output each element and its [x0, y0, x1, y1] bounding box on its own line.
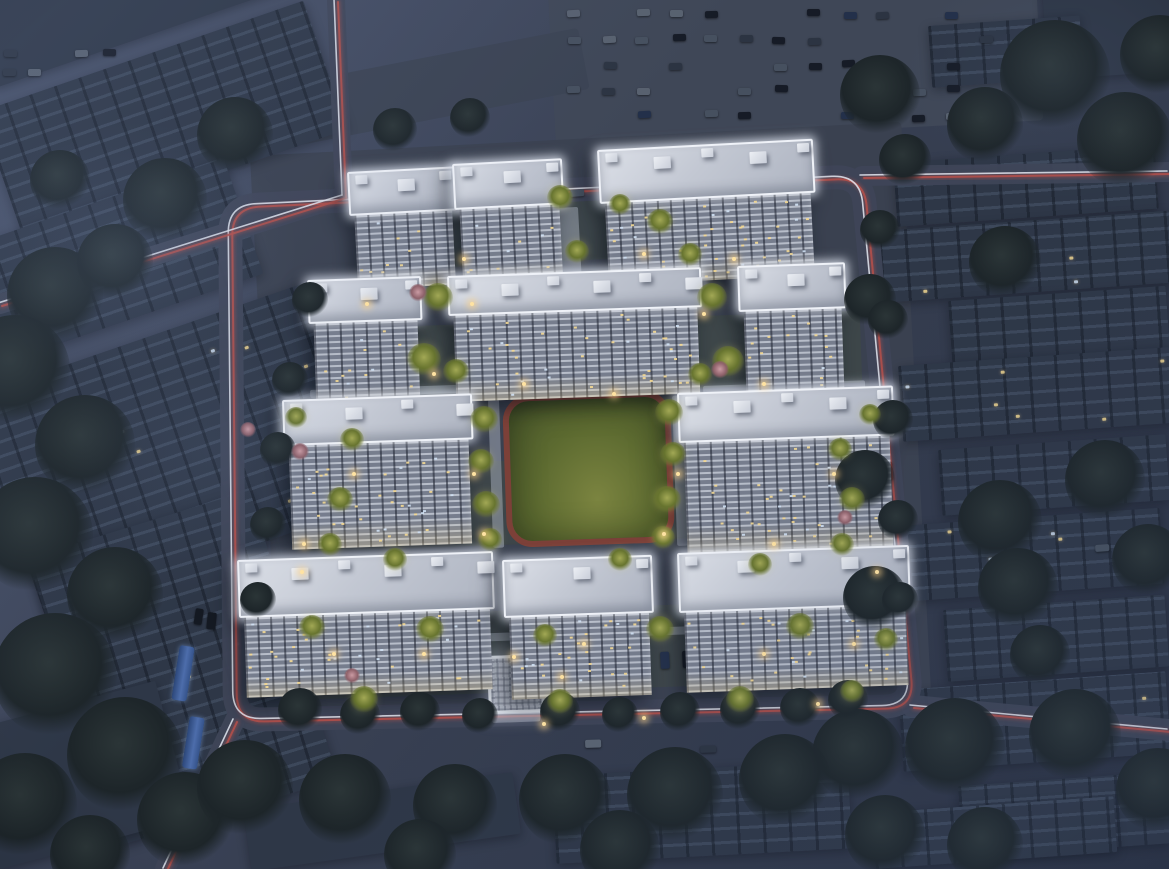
rooftop-unit: [546, 162, 558, 172]
lit-apartment-window: [297, 682, 300, 684]
lit-apartment-window: [736, 538, 739, 540]
lit-apartment-window: [525, 658, 528, 660]
lit-apartment-window: [649, 380, 652, 382]
lit-apartment-window: [574, 327, 577, 329]
dark-tree-canopy: [905, 698, 1005, 798]
lit-apartment-window: [679, 382, 682, 384]
rooftop-unit: [789, 553, 801, 562]
lit-tree: [299, 615, 325, 641]
lit-apartment-window: [689, 355, 692, 357]
lit-apartment-window: [521, 667, 524, 669]
lit-apartment-window: [438, 615, 441, 617]
lit-apartment-window: [702, 667, 705, 669]
lit-apartment-window: [766, 498, 769, 500]
lit-apartment-window: [620, 227, 623, 229]
dark-tree-canopy: [1065, 440, 1145, 520]
lit-apartment-window: [770, 496, 773, 498]
garden-lamp: [662, 532, 666, 536]
lit-tree: [468, 449, 494, 475]
lit-apartment-window: [741, 226, 744, 228]
lit-apartment-window: [391, 501, 394, 503]
lit-tree: [608, 548, 632, 572]
rooftop-unit: [829, 266, 841, 275]
lit-apartment-window: [680, 343, 683, 345]
lit-apartment-window: [792, 661, 795, 663]
lit-apartment-window: [730, 675, 733, 677]
lit-apartment-window: [406, 462, 409, 464]
rooftop-unit: [787, 274, 804, 287]
lit-apartment-window: [361, 339, 364, 341]
lit-apartment-window: [400, 264, 403, 266]
lit-apartment-window: [647, 370, 650, 372]
lit-apartment-window: [515, 373, 518, 375]
lit-apartment-window: [542, 674, 545, 676]
lit-apartment-window: [750, 680, 753, 682]
lit-apartment-window: [869, 535, 872, 537]
dark-tree-canopy: [1010, 625, 1070, 685]
lit-tree: [828, 438, 852, 462]
lit-apartment-window: [825, 346, 828, 348]
lit-apartment-window: [631, 224, 634, 226]
lit-apartment-window: [358, 655, 361, 657]
flowering-tree: [711, 361, 729, 379]
lit-apartment-window: [664, 376, 667, 378]
dark-tree-canopy: [660, 692, 700, 732]
residential-building-top-left-west: [347, 166, 461, 289]
garden-lamp: [512, 655, 516, 659]
lit-apartment-window: [776, 226, 779, 228]
rooftop-unit: [605, 153, 617, 163]
lit-apartment-window: [767, 530, 770, 532]
lit-apartment-window: [741, 245, 744, 247]
lit-apartment-window: [642, 374, 645, 376]
lit-apartment-window: [401, 505, 404, 507]
lit-apartment-window: [829, 355, 832, 357]
lit-apartment-window: [547, 266, 550, 268]
lit-apartment-window: [429, 491, 432, 493]
garden-lamp: [642, 716, 646, 720]
lit-apartment-window: [292, 646, 295, 648]
lit-tree: [726, 686, 754, 714]
lit-apartment-window: [643, 377, 646, 379]
garden-lamp: [612, 392, 616, 396]
rooftop-unit: [636, 559, 648, 568]
lit-apartment-window: [633, 623, 636, 625]
lit-apartment-window: [807, 654, 810, 656]
lit-apartment-window: [798, 236, 801, 238]
lit-apartment-window: [820, 525, 823, 527]
lit-apartment-window: [610, 648, 613, 650]
garden-lamp: [432, 372, 436, 376]
lit-apartment-window: [817, 525, 820, 527]
lit-apartment-window: [398, 344, 401, 346]
dark-tree-canopy: [882, 582, 918, 618]
lit-apartment-window: [377, 530, 380, 532]
walkway-path: [492, 712, 540, 723]
lit-tree: [678, 243, 702, 267]
lit-apartment-window: [742, 534, 745, 536]
lit-apartment-window: [730, 221, 733, 223]
garden-lamp: [676, 472, 680, 476]
lit-apartment-window: [874, 517, 877, 519]
lit-apartment-window: [856, 629, 859, 631]
lit-apartment-window: [511, 394, 514, 396]
lit-apartment-window: [402, 623, 405, 625]
lit-apartment-window: [421, 512, 424, 514]
lit-apartment-window: [759, 617, 762, 619]
dark-tree-canopy: [969, 226, 1041, 298]
lit-tree: [688, 363, 712, 387]
lit-apartment-window: [500, 342, 503, 344]
dark-tree-canopy: [292, 282, 328, 318]
lit-tree: [874, 628, 898, 652]
lit-apartment-window: [489, 347, 492, 349]
lit-apartment-window: [791, 521, 794, 523]
rooftop-unit: [781, 393, 793, 402]
dark-tree-canopy: [860, 210, 900, 250]
rooftop-unit: [685, 396, 697, 405]
lit-apartment-window: [806, 529, 809, 531]
lit-apartment-window: [869, 444, 872, 446]
lit-apartment-window: [545, 369, 548, 371]
lit-apartment-window: [711, 214, 714, 216]
rooftop-unit: [401, 399, 413, 408]
lit-apartment-window: [744, 239, 747, 241]
garden-lamp: [702, 312, 706, 316]
dark-tree-canopy: [373, 108, 417, 152]
garden-lamp: [816, 702, 820, 706]
lit-apartment-window: [884, 677, 887, 679]
lit-apartment-window: [547, 376, 550, 378]
lit-apartment-window: [264, 683, 267, 685]
lit-apartment-window: [828, 466, 831, 468]
lit-apartment-window: [434, 457, 437, 459]
dark-tree-canopy: [739, 734, 831, 826]
lit-apartment-window: [621, 314, 624, 316]
garden-lamp: [472, 472, 476, 476]
lit-tree: [472, 491, 500, 519]
lit-apartment-window: [369, 270, 372, 272]
lit-apartment-window: [613, 240, 616, 242]
lit-apartment-window: [754, 327, 757, 329]
lit-tree: [655, 399, 683, 427]
lit-apartment-window: [270, 651, 273, 653]
lit-apartment-window: [577, 642, 580, 644]
lit-apartment-window: [774, 672, 777, 674]
lit-apartment-window: [418, 230, 421, 232]
lit-apartment-window: [885, 654, 888, 656]
residential-building-mid-center: [447, 267, 705, 402]
haze-patch: [60, 300, 360, 600]
lit-apartment-window: [793, 494, 796, 496]
lit-apartment-window: [456, 678, 459, 680]
lit-apartment-window: [393, 490, 396, 492]
garden-lamp: [642, 252, 646, 256]
lit-apartment-window: [634, 236, 637, 238]
scene: [0, 0, 1169, 869]
lit-tree: [547, 185, 573, 211]
rooftop-unit: [355, 175, 367, 185]
rooftop-unit: [503, 170, 521, 183]
dark-tree-canopy: [868, 300, 908, 340]
lit-apartment-window: [795, 219, 798, 221]
lit-apartment-window: [359, 519, 362, 521]
lit-apartment-window: [746, 512, 749, 514]
lit-apartment-window: [807, 323, 810, 325]
garden-lamp: [300, 570, 304, 574]
lit-apartment-window: [400, 467, 403, 469]
lit-tree: [565, 240, 589, 264]
lit-apartment-window: [885, 668, 888, 670]
building-facade: [509, 613, 652, 700]
lit-apartment-window: [624, 257, 627, 259]
lit-apartment-window: [899, 672, 902, 674]
lit-apartment-window: [364, 374, 367, 376]
rooftop-unit: [338, 560, 350, 569]
lit-apartment-window: [611, 341, 614, 343]
lit-apartment-window: [360, 270, 363, 272]
lit-apartment-window: [828, 485, 831, 487]
lit-apartment-window: [825, 335, 828, 337]
lit-apartment-window: [569, 636, 572, 638]
garden-lamp: [470, 302, 474, 306]
lit-apartment-window: [757, 484, 760, 486]
lit-apartment-window: [794, 517, 797, 519]
lit-apartment-window: [414, 513, 417, 515]
lit-apartment-window: [507, 250, 510, 252]
lit-apartment-window: [383, 474, 386, 476]
lit-apartment-window: [686, 382, 689, 384]
garden-lamp: [732, 257, 736, 261]
lit-apartment-window: [266, 678, 269, 680]
lit-apartment-window: [251, 624, 254, 626]
garden-lamp: [422, 652, 426, 656]
lit-apartment-window: [712, 492, 715, 494]
rooftop-unit: [460, 167, 472, 177]
lit-apartment-window: [578, 621, 581, 623]
lit-tree: [859, 404, 881, 426]
lit-apartment-window: [275, 656, 278, 658]
dark-tree-canopy: [602, 697, 638, 733]
lit-apartment-window: [371, 369, 374, 371]
lit-apartment-window: [408, 250, 411, 252]
lit-apartment-window: [367, 625, 370, 627]
dark-tree-canopy: [780, 688, 820, 728]
lit-apartment-window: [802, 250, 805, 252]
lit-apartment-window: [383, 528, 386, 530]
lit-apartment-window: [726, 649, 729, 651]
residential-building-bottom-center: [502, 555, 657, 700]
lit-apartment-window: [791, 657, 794, 659]
lit-apartment-window: [249, 653, 252, 655]
building-facade: [453, 307, 700, 401]
lit-apartment-window: [627, 319, 630, 321]
lit-apartment-window: [714, 270, 717, 272]
lit-apartment-window: [398, 625, 401, 627]
garden-lamp: [762, 652, 766, 656]
rooftop-unit: [431, 557, 443, 566]
dark-tree-canopy: [845, 795, 925, 869]
dark-tree-canopy: [197, 740, 293, 836]
lit-apartment-window: [525, 665, 528, 667]
dark-tree-canopy: [1029, 689, 1121, 781]
lit-apartment-window: [762, 256, 765, 258]
lit-apartment-window: [704, 245, 707, 247]
lit-tree: [651, 526, 675, 550]
lit-apartment-window: [540, 663, 543, 665]
garden-lamp: [772, 542, 776, 546]
lit-apartment-window: [518, 241, 521, 243]
lit-apartment-window: [637, 619, 640, 621]
lit-apartment-window: [470, 329, 473, 331]
lit-apartment-window: [778, 622, 781, 624]
rooftop-unit: [829, 397, 846, 410]
garden-lamp: [560, 675, 564, 679]
lit-apartment-window: [609, 621, 612, 623]
lit-tree: [646, 616, 674, 644]
garden-lamp: [852, 642, 856, 646]
lit-apartment-window: [506, 322, 509, 324]
rooftop-unit: [701, 148, 713, 158]
lit-apartment-window: [417, 531, 420, 533]
rooftop-unit: [510, 563, 522, 572]
lit-apartment-window: [723, 505, 726, 507]
lit-apartment-window: [676, 325, 679, 327]
lit-apartment-window: [477, 619, 480, 621]
rooftop-unit: [733, 400, 750, 413]
lit-apartment-window: [405, 534, 408, 536]
lit-tree: [350, 686, 378, 714]
lit-apartment-window: [662, 265, 665, 267]
car: [206, 612, 217, 630]
lit-apartment-window: [814, 334, 817, 336]
dark-tree-canopy: [978, 548, 1058, 628]
dark-tree-canopy: [278, 688, 322, 732]
lit-apartment-window: [627, 341, 630, 343]
lit-apartment-window: [568, 656, 571, 658]
lit-apartment-window: [590, 386, 593, 388]
lit-apartment-window: [541, 234, 544, 236]
lit-apartment-window: [805, 218, 808, 220]
lit-apartment-window: [386, 264, 389, 266]
lit-apartment-window: [715, 257, 718, 259]
lit-apartment-window: [803, 676, 806, 678]
garden-lamp: [365, 302, 369, 306]
rooftop-unit: [360, 288, 377, 301]
lit-tree: [533, 624, 557, 648]
lit-apartment-window: [704, 234, 707, 236]
lit-apartment-window: [348, 369, 351, 371]
lit-apartment-window: [381, 272, 384, 274]
lit-apartment-window: [760, 352, 763, 354]
lit-apartment-window: [793, 540, 796, 542]
rooftop-unit: [397, 178, 415, 191]
lit-apartment-window: [616, 623, 619, 625]
lit-apartment-window: [328, 659, 331, 661]
lit-apartment-window: [628, 647, 631, 649]
flowering-tree: [409, 284, 427, 302]
rooftop-unit: [547, 276, 559, 285]
lit-tree: [660, 442, 686, 468]
flowering-tree: [344, 668, 360, 684]
lit-apartment-window: [721, 523, 724, 525]
lit-apartment-window: [662, 261, 665, 263]
lit-apartment-window: [792, 315, 795, 317]
lit-apartment-window: [807, 447, 810, 449]
lit-apartment-window: [604, 624, 607, 626]
lit-tree: [416, 616, 444, 644]
lit-apartment-window: [579, 679, 582, 681]
lit-apartment-window: [301, 669, 304, 671]
dark-tree-canopy: [462, 698, 498, 734]
central-lawn-with-track: [502, 390, 675, 548]
lit-tree: [647, 209, 673, 235]
lit-tree: [423, 283, 453, 313]
lit-apartment-window: [515, 356, 518, 358]
lit-apartment-window: [410, 385, 413, 387]
lit-apartment-window: [726, 210, 729, 212]
lit-apartment-window: [454, 625, 457, 627]
building-facade: [244, 609, 493, 698]
lit-apartment-window: [541, 333, 544, 335]
lit-apartment-window: [870, 669, 873, 671]
lit-apartment-window: [751, 523, 754, 525]
lit-apartment-window: [751, 342, 754, 344]
lit-apartment-window: [388, 536, 391, 538]
lit-apartment-window: [249, 666, 252, 668]
lit-apartment-window: [588, 670, 591, 672]
lit-apartment-window: [778, 259, 781, 261]
lit-tree: [748, 553, 772, 577]
lit-apartment-window: [451, 494, 454, 496]
lit-apartment-window: [342, 375, 345, 377]
lit-apartment-window: [290, 660, 293, 662]
garden-lamp: [482, 532, 486, 536]
lit-apartment-window: [380, 649, 383, 651]
car: [585, 739, 601, 748]
garden-lamp: [762, 382, 766, 386]
lit-apartment-window: [475, 224, 478, 226]
garden-lamp: [832, 472, 836, 476]
lit-apartment-window: [865, 665, 868, 667]
lit-apartment-window: [669, 349, 672, 351]
lit-apartment-window: [813, 535, 816, 537]
lit-apartment-window: [820, 384, 823, 386]
lit-apartment-window: [786, 250, 789, 252]
lit-tree: [697, 283, 727, 313]
rooftop-unit: [455, 279, 467, 288]
car: [1095, 544, 1109, 552]
garden-lamp: [332, 652, 336, 656]
rooftop-unit: [745, 269, 757, 278]
lit-tree: [443, 359, 469, 385]
lit-apartment-window: [819, 377, 822, 379]
lit-apartment-window: [611, 673, 614, 675]
lit-apartment-window: [754, 201, 757, 203]
lit-apartment-window: [666, 343, 669, 345]
lit-apartment-window: [585, 651, 588, 653]
lit-apartment-window: [768, 336, 771, 338]
lit-apartment-window: [795, 204, 798, 206]
lit-apartment-window: [758, 523, 761, 525]
lit-apartment-window: [467, 330, 470, 332]
lit-apartment-window: [653, 330, 656, 332]
lit-apartment-window: [794, 448, 797, 450]
lit-apartment-window: [347, 383, 350, 385]
lit-apartment-window: [785, 201, 788, 203]
dark-tree-canopy: [400, 692, 440, 732]
lit-apartment-window: [670, 380, 673, 382]
